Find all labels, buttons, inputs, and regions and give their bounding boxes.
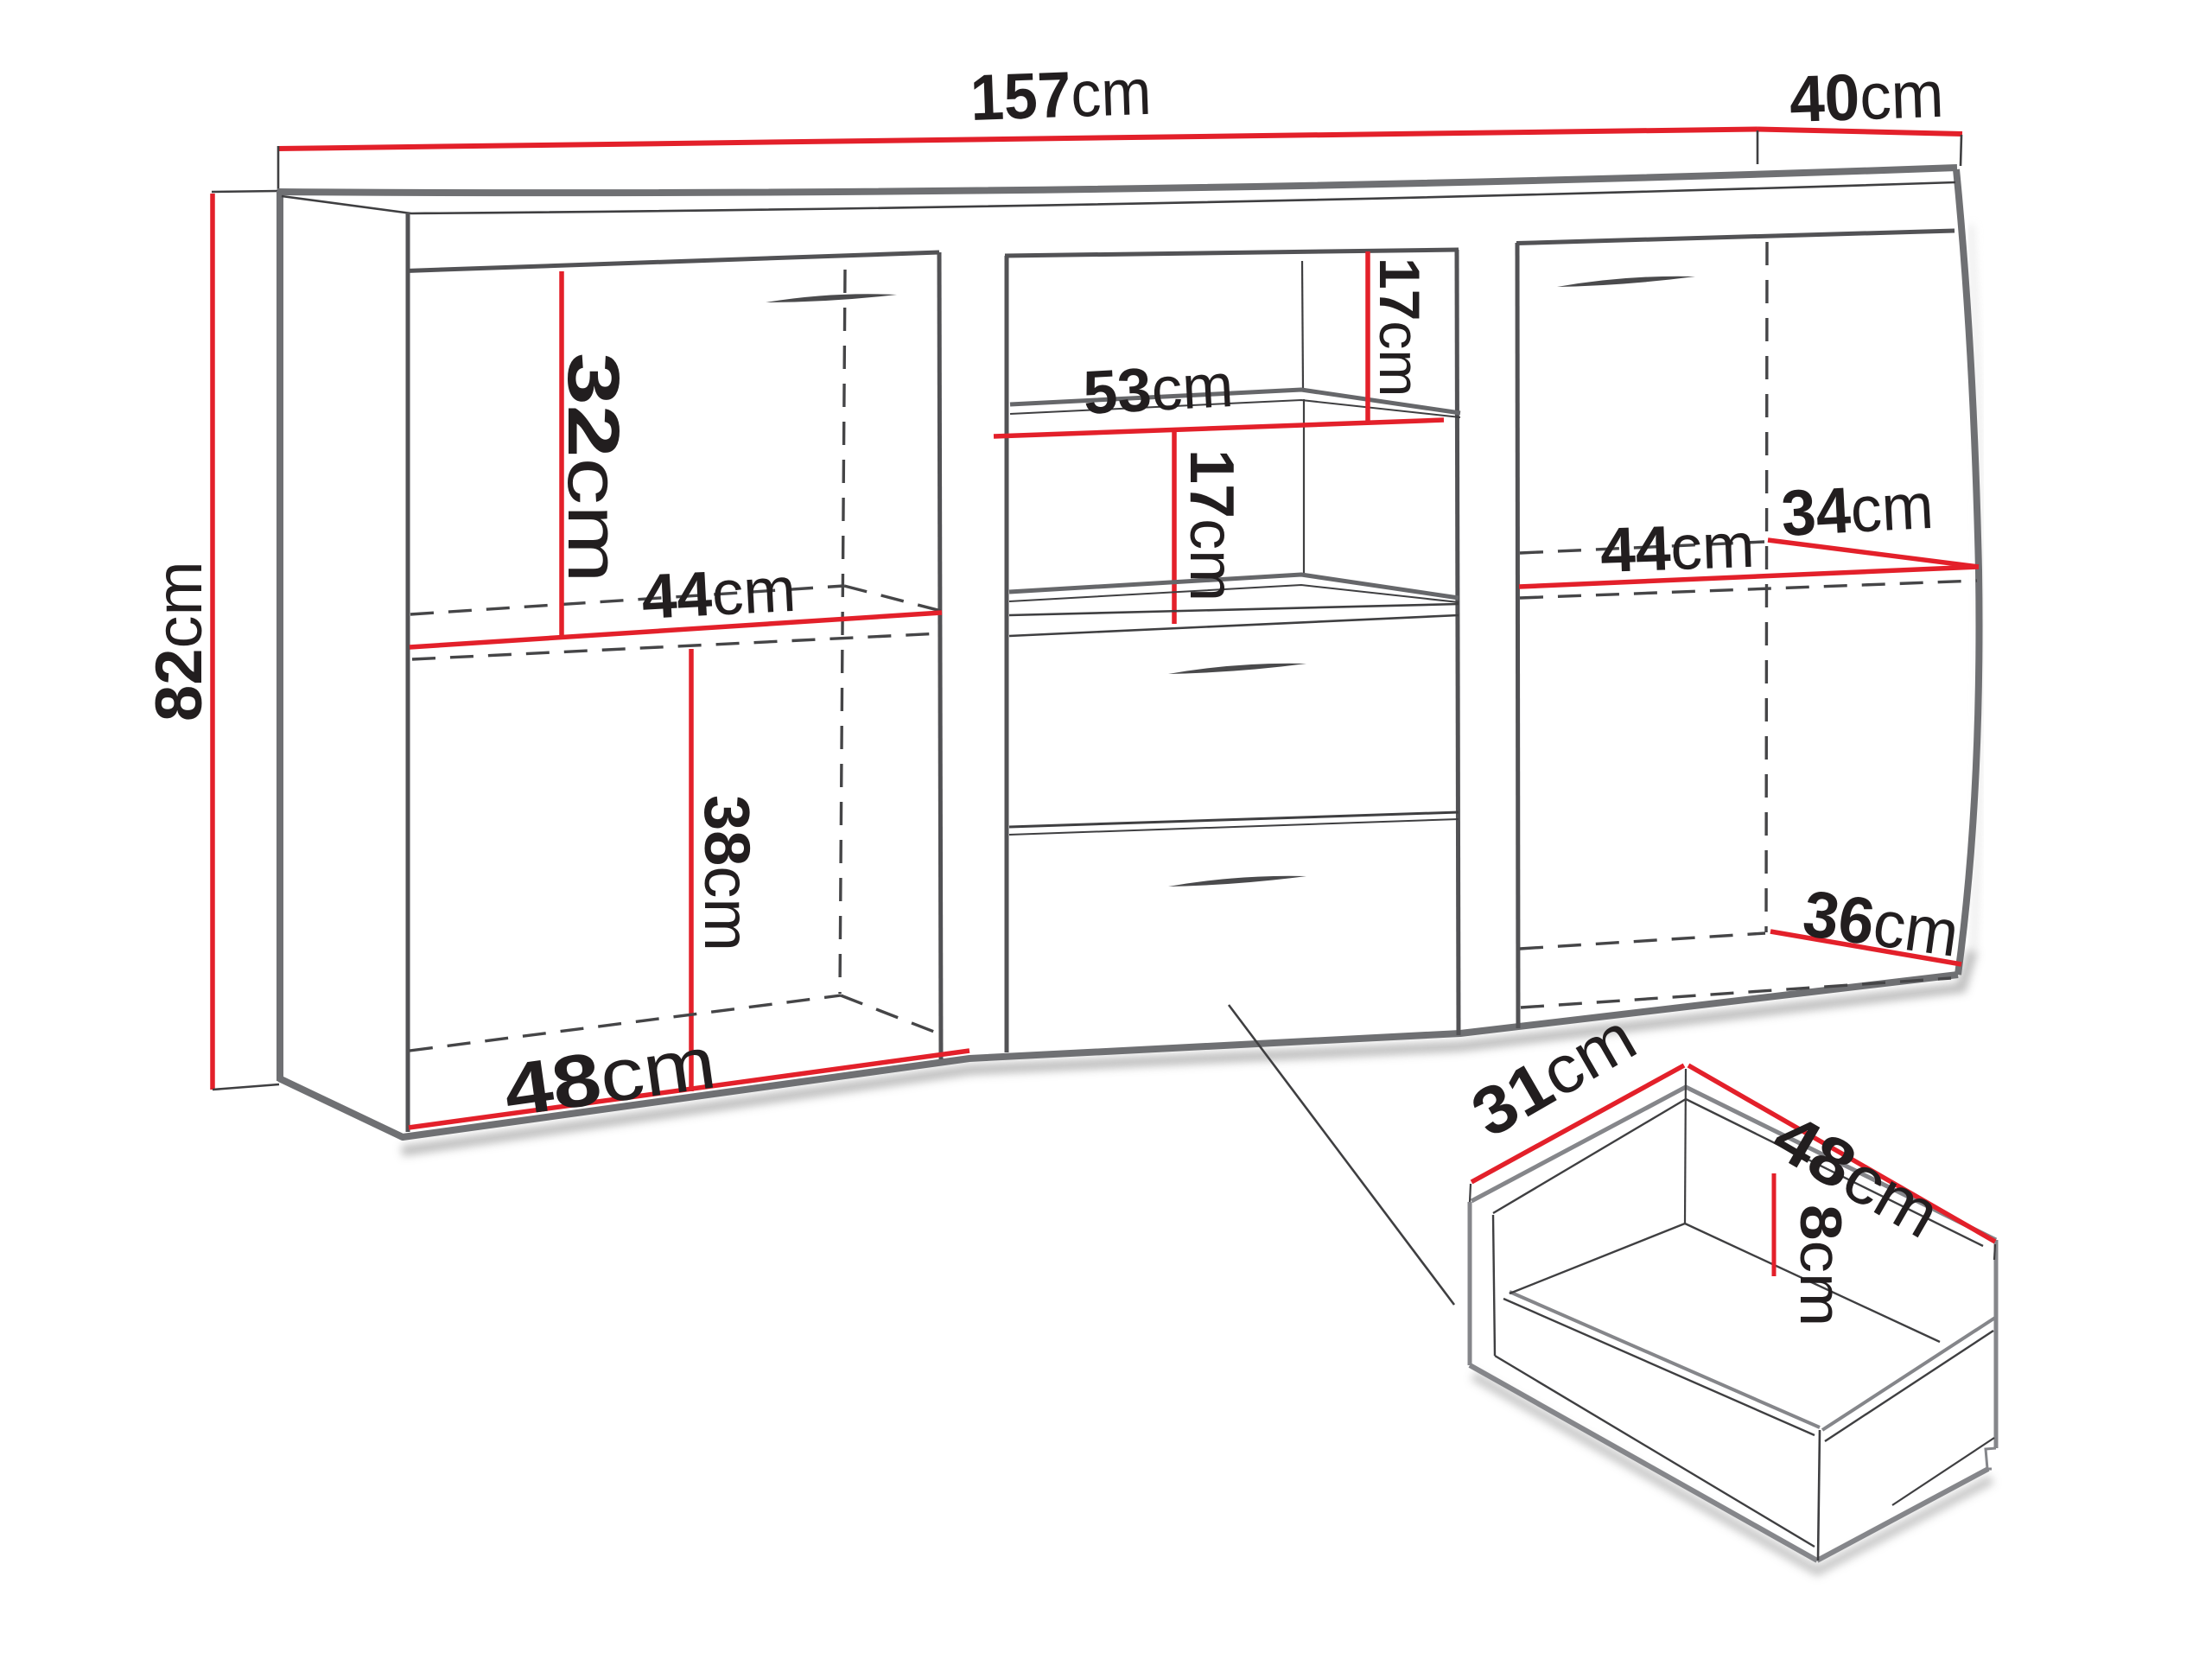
svg-text:157cm: 157cm <box>969 55 1153 134</box>
svg-text:44cm: 44cm <box>1599 511 1756 586</box>
svg-text:40cm: 40cm <box>1789 57 1945 136</box>
svg-text:44cm: 44cm <box>640 555 798 632</box>
svg-text:34cm: 34cm <box>1779 469 1935 550</box>
svg-text:32cm: 32cm <box>553 353 634 583</box>
svg-text:17cm: 17cm <box>1368 257 1432 397</box>
svg-text:17cm: 17cm <box>1177 449 1246 601</box>
svg-text:8cm: 8cm <box>1788 1205 1853 1326</box>
svg-text:53cm: 53cm <box>1082 352 1236 428</box>
svg-text:82cm: 82cm <box>143 561 216 721</box>
svg-text:38cm: 38cm <box>691 795 763 951</box>
